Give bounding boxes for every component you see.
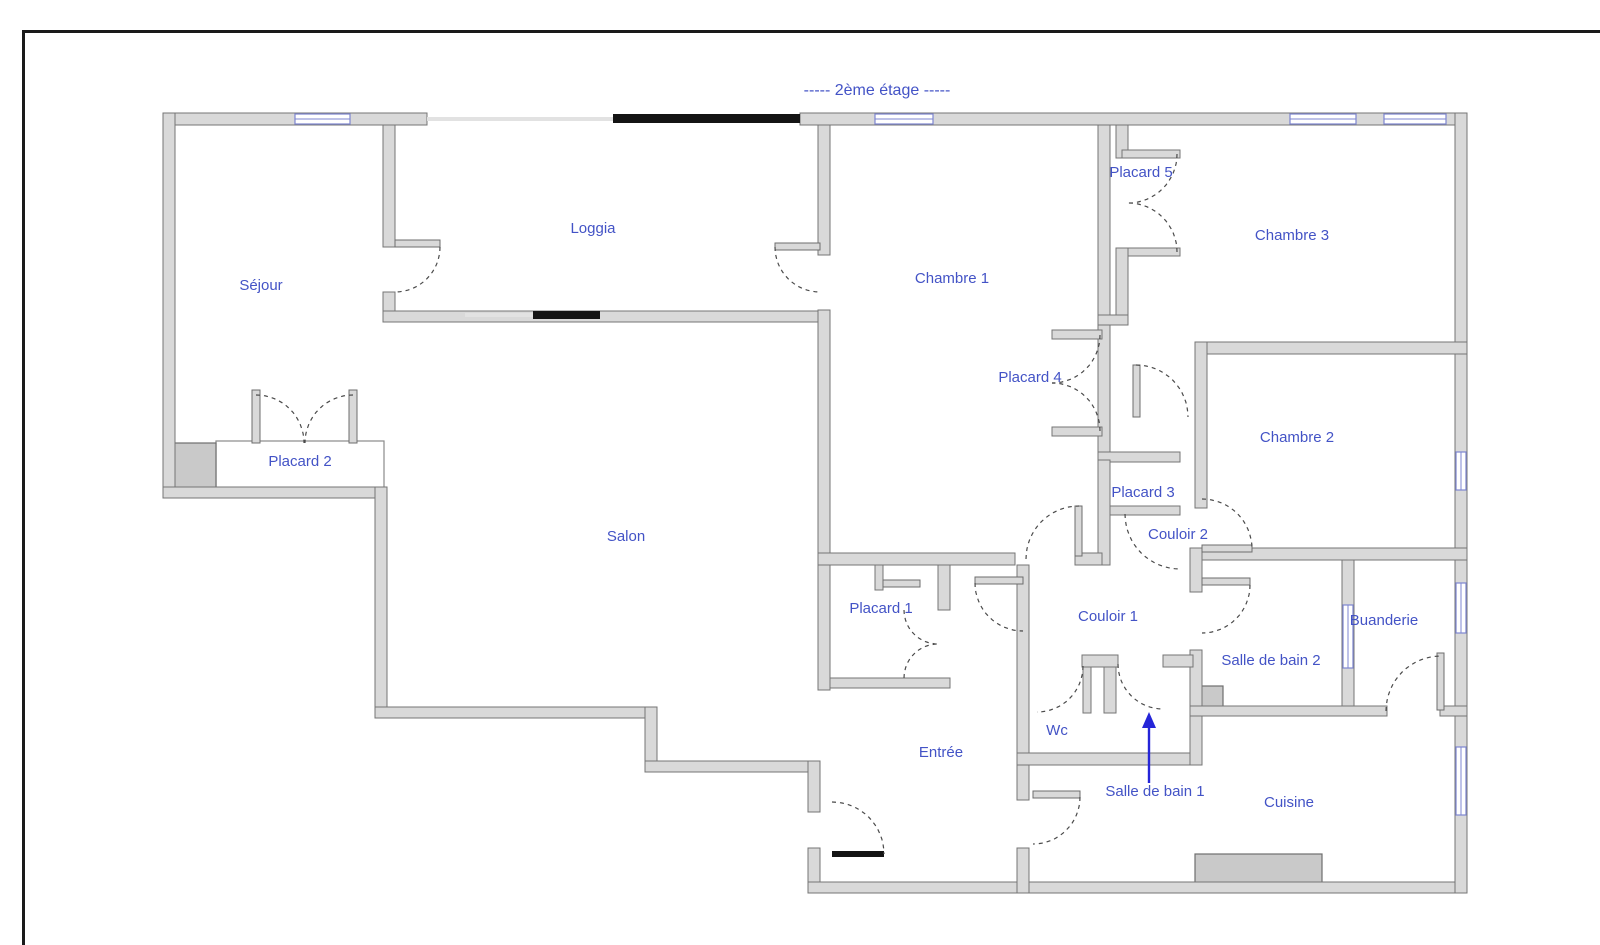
room-label-placard-1: Placard 1 xyxy=(849,600,912,617)
room-label-couloir-1: Couloir 1 xyxy=(1078,608,1138,625)
room-label-salle-de-bain-2: Salle de bain 2 xyxy=(1221,652,1320,669)
room-label-couloir-2: Couloir 2 xyxy=(1148,526,1208,543)
room-label-salon: Salon xyxy=(607,528,645,545)
room-label-chambre-1: Chambre 1 xyxy=(915,270,989,287)
floor-title: ----- 2ème étage ----- xyxy=(804,82,951,99)
room-label-placard-5: Placard 5 xyxy=(1109,164,1172,181)
room-label-wc: Wc xyxy=(1046,722,1068,739)
floor-plan-page: ----- 2ème étage ----- Séjour Loggia Cha… xyxy=(0,0,1600,945)
room-label-chambre-2: Chambre 2 xyxy=(1260,429,1334,446)
room-label-buanderie: Buanderie xyxy=(1350,612,1418,629)
room-label-cuisine: Cuisine xyxy=(1264,794,1314,811)
door-arcs-layer xyxy=(252,154,1444,857)
room-label-placard-2: Placard 2 xyxy=(268,453,331,470)
floor-plan-canvas: ----- 2ème étage ----- Séjour Loggia Cha… xyxy=(0,0,1600,945)
room-label-placard-3: Placard 3 xyxy=(1111,484,1174,501)
room-label-placard-4: Placard 4 xyxy=(998,369,1061,386)
openings-layer xyxy=(427,114,800,319)
room-label-loggia: Loggia xyxy=(570,220,616,237)
room-label-entree: Entrée xyxy=(919,744,963,761)
room-label-sejour: Séjour xyxy=(239,277,282,294)
room-label-salle-de-bain-1: Salle de bain 1 xyxy=(1105,783,1204,800)
room-label-chambre-3: Chambre 3 xyxy=(1255,227,1329,244)
stairs-up-arrow xyxy=(1142,712,1156,728)
